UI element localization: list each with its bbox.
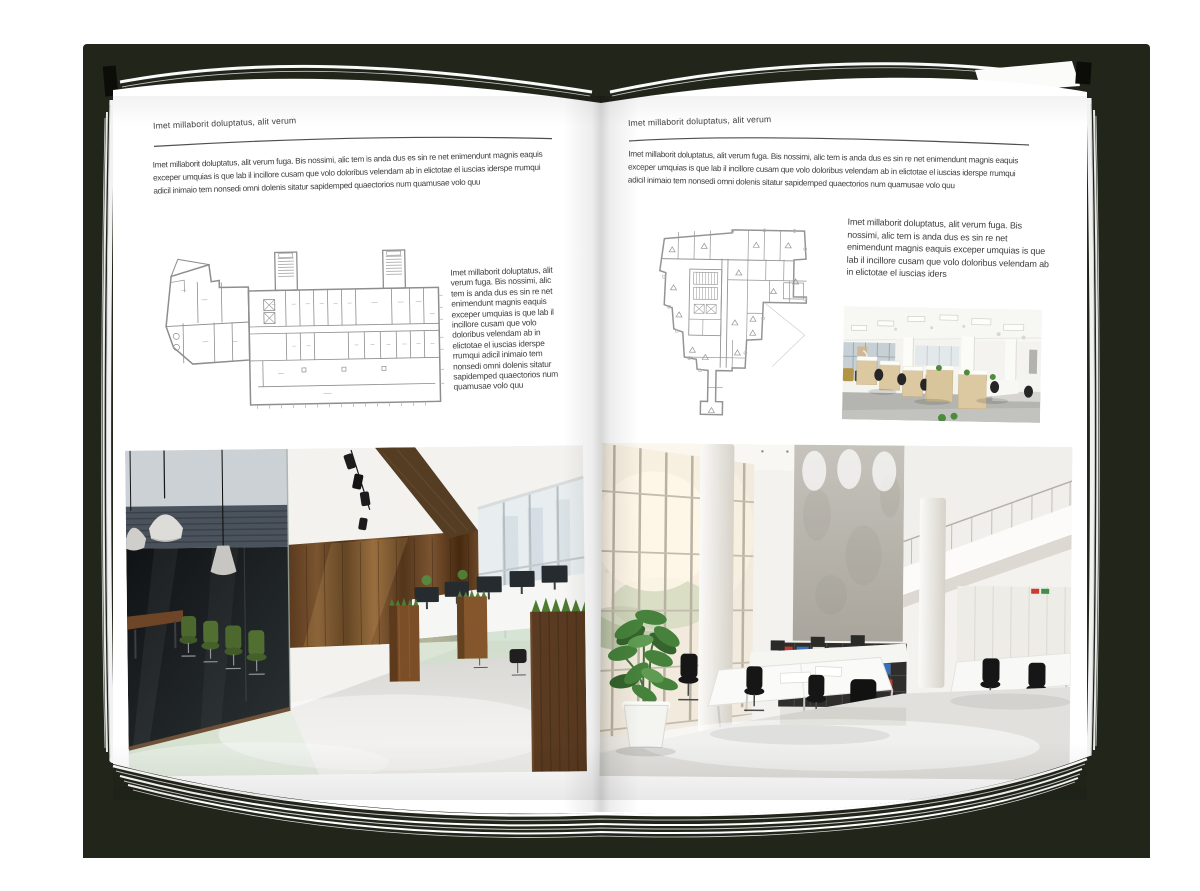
header-rule [627,132,1031,148]
sidebar-paragraph: Imet millaborit doluptatus, alit verum f… [450,264,566,392]
intro-paragraph: Imet millaborit doluptatus, alit verum f… [628,148,1035,193]
header-rule [152,131,554,150]
exit-sign [1041,589,1049,594]
page-title: Imet millaborit doluptatus, alit verum [628,114,771,128]
meeting-room [125,449,291,749]
cover-corner-right [1075,62,1091,85]
concrete-wall [793,445,905,642]
left-page: Imet millaborit doluptatus, alit verum I… [113,90,601,814]
floor-plan-left [150,225,448,416]
bright-office-photo [600,443,1073,780]
right-page: Imet millaborit doluptatus, alit verum I… [601,90,1087,814]
open-office-photo-small [842,306,1042,423]
intro-paragraph: Imet millaborit doluptatus, alit verum f… [153,148,556,198]
page-title: Imet millaborit doluptatus, alit verum [153,115,297,130]
magazine-spread-mockup: Imet millaborit doluptatus, alit verum I… [0,0,1200,891]
first-aid-sign [1031,589,1039,594]
loft-office-photo [125,445,587,777]
column [918,498,946,688]
floor-plan-right [641,216,840,419]
sidebar-paragraph: Imet millaborit doluptatus, alit verum f… [846,216,1053,284]
